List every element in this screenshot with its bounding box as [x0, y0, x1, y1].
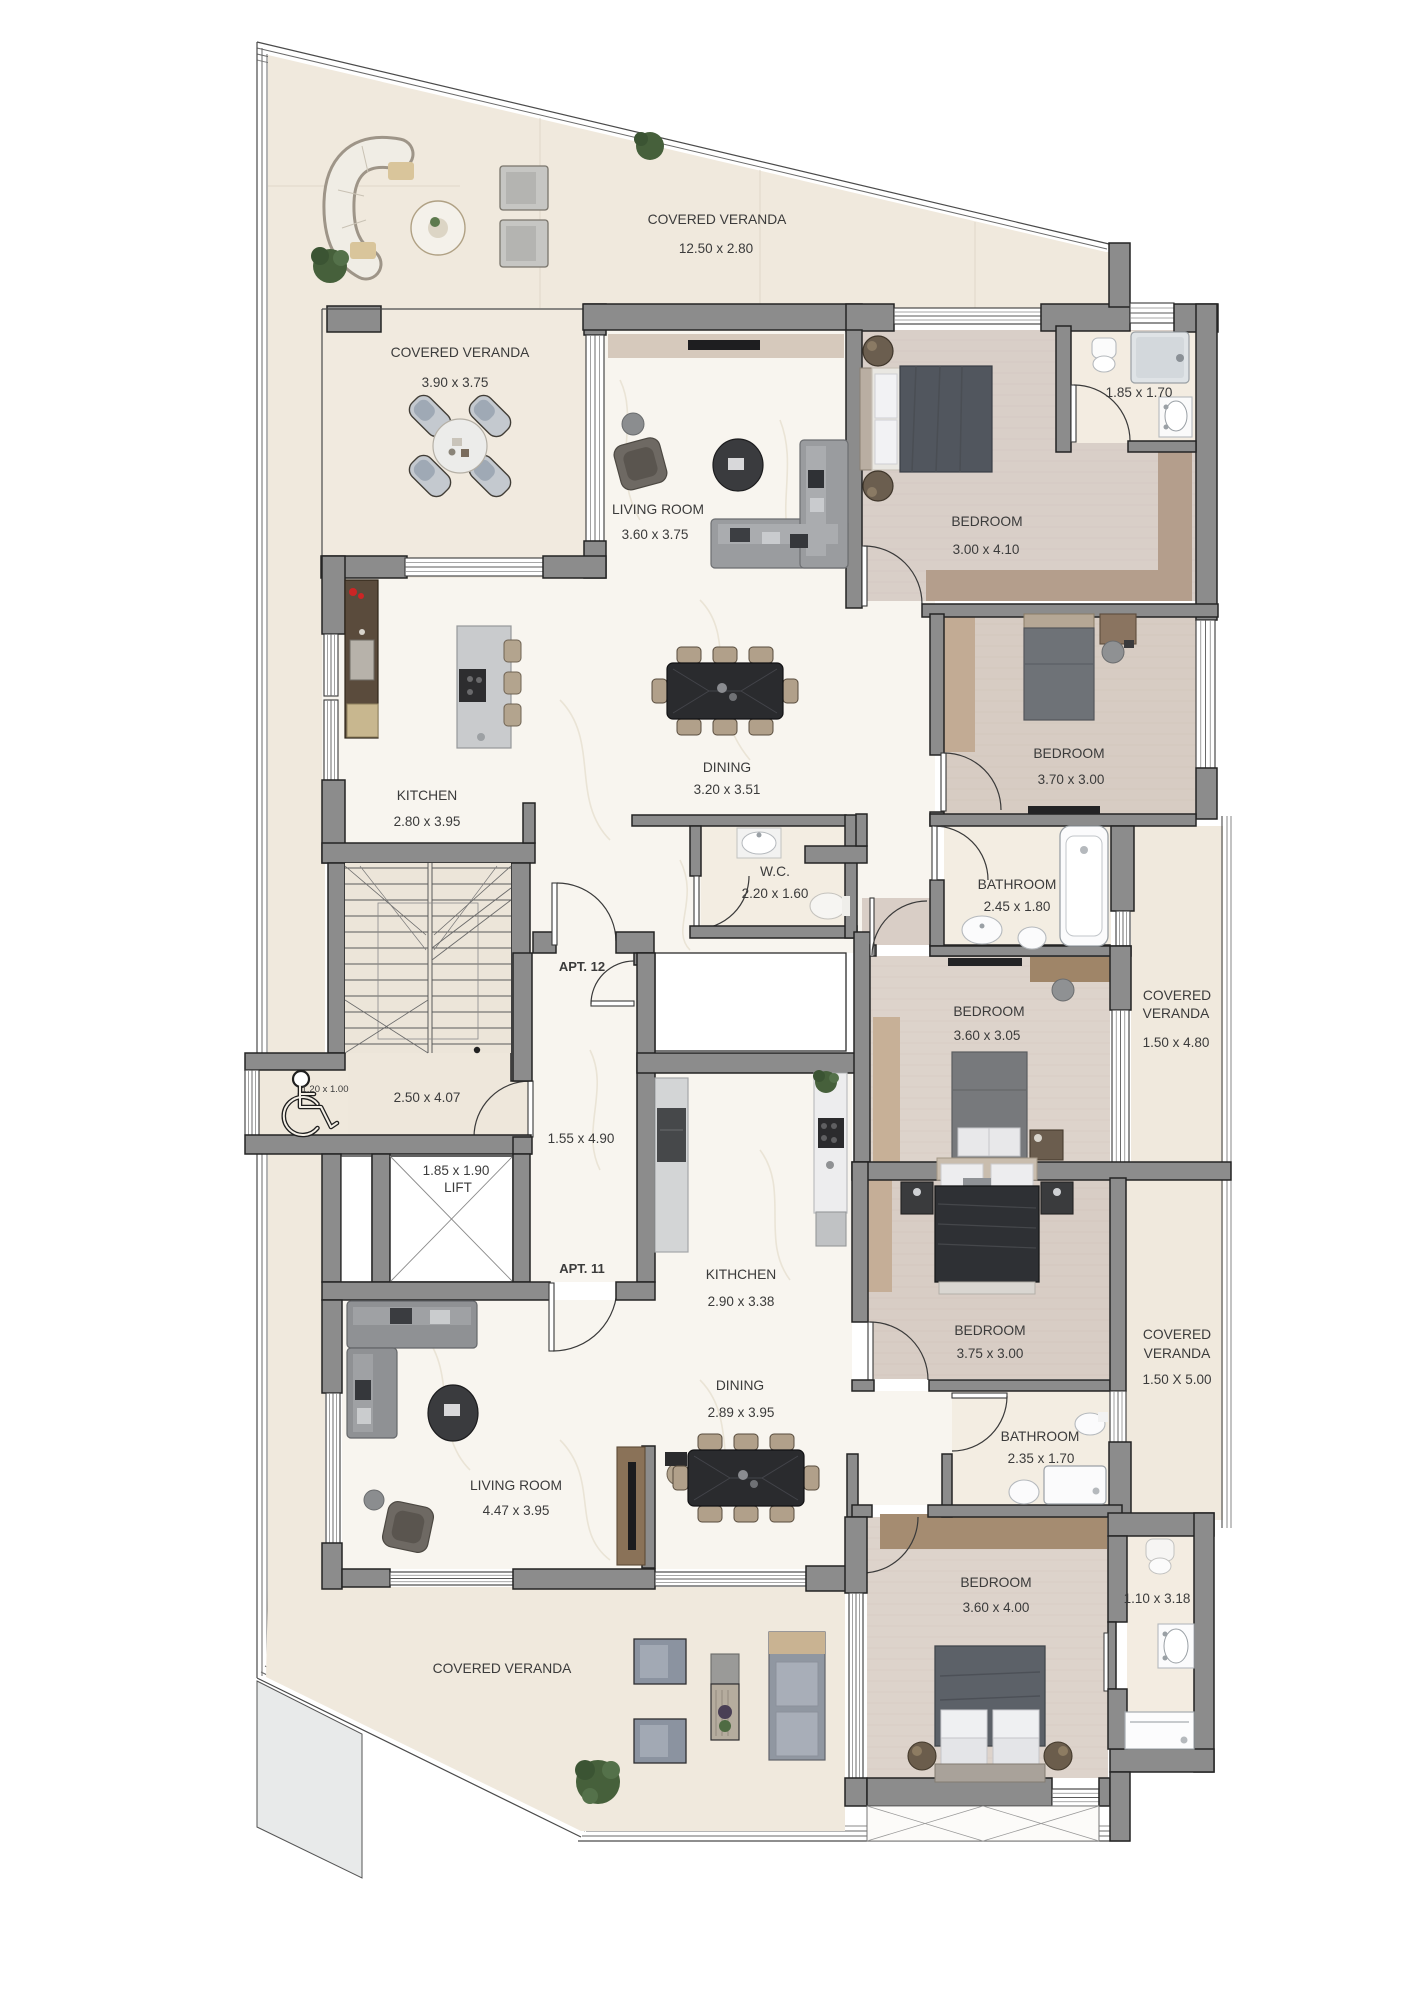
svg-text:KITCHEN: KITCHEN: [397, 788, 458, 803]
svg-text:1.55 x 4.90: 1.55 x 4.90: [548, 1131, 615, 1146]
svg-text:DINING: DINING: [716, 1378, 764, 1393]
svg-text:2.80 x 3.95: 2.80 x 3.95: [394, 814, 461, 829]
svg-text:APT. 12: APT. 12: [559, 959, 605, 974]
svg-text:1.85 x 1.70: 1.85 x 1.70: [1106, 385, 1173, 400]
svg-text:1.10 x 3.18: 1.10 x 3.18: [1124, 1591, 1191, 1606]
svg-text:2.45 x 1.80: 2.45 x 1.80: [984, 899, 1051, 914]
svg-text:COVERED VERANDA: COVERED VERANDA: [433, 1661, 573, 1676]
svg-text:BATHROOM: BATHROOM: [1001, 1429, 1080, 1444]
svg-text:LIVING ROOM: LIVING ROOM: [612, 502, 704, 517]
svg-text:VERANDA: VERANDA: [1143, 1006, 1210, 1021]
svg-text:3.20 x 3.51: 3.20 x 3.51: [694, 782, 761, 797]
svg-text:BEDROOM: BEDROOM: [951, 514, 1022, 529]
svg-text:3.60 x 4.00: 3.60 x 4.00: [963, 1600, 1030, 1615]
svg-text:3.75 x 3.00: 3.75 x 3.00: [957, 1346, 1024, 1361]
svg-text:DINING: DINING: [703, 760, 751, 775]
svg-text:VERANDA: VERANDA: [1144, 1346, 1211, 1361]
svg-text:LIFT: LIFT: [444, 1180, 472, 1195]
svg-text:1.85 x 1.90: 1.85 x 1.90: [423, 1163, 490, 1178]
svg-text:2.90 x 3.38: 2.90 x 3.38: [708, 1294, 775, 1309]
svg-text:BEDROOM: BEDROOM: [960, 1575, 1031, 1590]
svg-text:2.35 x 1.70: 2.35 x 1.70: [1008, 1451, 1075, 1466]
svg-text:BATHROOM: BATHROOM: [978, 877, 1057, 892]
svg-text:COVERED: COVERED: [1143, 988, 1211, 1003]
svg-text:2.20 x 1.60: 2.20 x 1.60: [742, 886, 809, 901]
svg-text:3.60 x 3.75: 3.60 x 3.75: [622, 527, 689, 542]
svg-text:3.70 x 3.00: 3.70 x 3.00: [1038, 772, 1105, 787]
svg-text:12.50 x 2.80: 12.50 x 2.80: [679, 241, 753, 256]
svg-text:KITHCHEN: KITHCHEN: [706, 1267, 777, 1282]
svg-text:4.47 x 3.95: 4.47 x 3.95: [483, 1503, 550, 1518]
svg-text:LIVING ROOM: LIVING ROOM: [470, 1478, 562, 1493]
svg-text:3.00 x 4.10: 3.00 x 4.10: [953, 542, 1020, 557]
svg-text:APT. 11: APT. 11: [559, 1261, 605, 1276]
svg-text:2.50 x 4.07: 2.50 x 4.07: [394, 1090, 461, 1105]
svg-text:COVERED VERANDA: COVERED VERANDA: [648, 212, 788, 227]
svg-text:BEDROOM: BEDROOM: [954, 1323, 1025, 1338]
svg-text:BEDROOM: BEDROOM: [953, 1004, 1024, 1019]
svg-text:COVERED VERANDA: COVERED VERANDA: [391, 345, 531, 360]
svg-text:W.C.: W.C.: [760, 864, 790, 879]
svg-text:1.20 x 1.00: 1.20 x 1.00: [301, 1084, 348, 1095]
svg-text:1.50 x 4.80: 1.50 x 4.80: [1143, 1035, 1210, 1050]
svg-text:2.89 x 3.95: 2.89 x 3.95: [708, 1405, 775, 1420]
svg-text:3.90 x 3.75: 3.90 x 3.75: [422, 375, 489, 390]
svg-text:1.50 X 5.00: 1.50 X 5.00: [1142, 1372, 1211, 1387]
svg-text:BEDROOM: BEDROOM: [1033, 746, 1104, 761]
svg-text:3.60 x 3.05: 3.60 x 3.05: [954, 1028, 1021, 1043]
svg-text:COVERED: COVERED: [1143, 1327, 1211, 1342]
